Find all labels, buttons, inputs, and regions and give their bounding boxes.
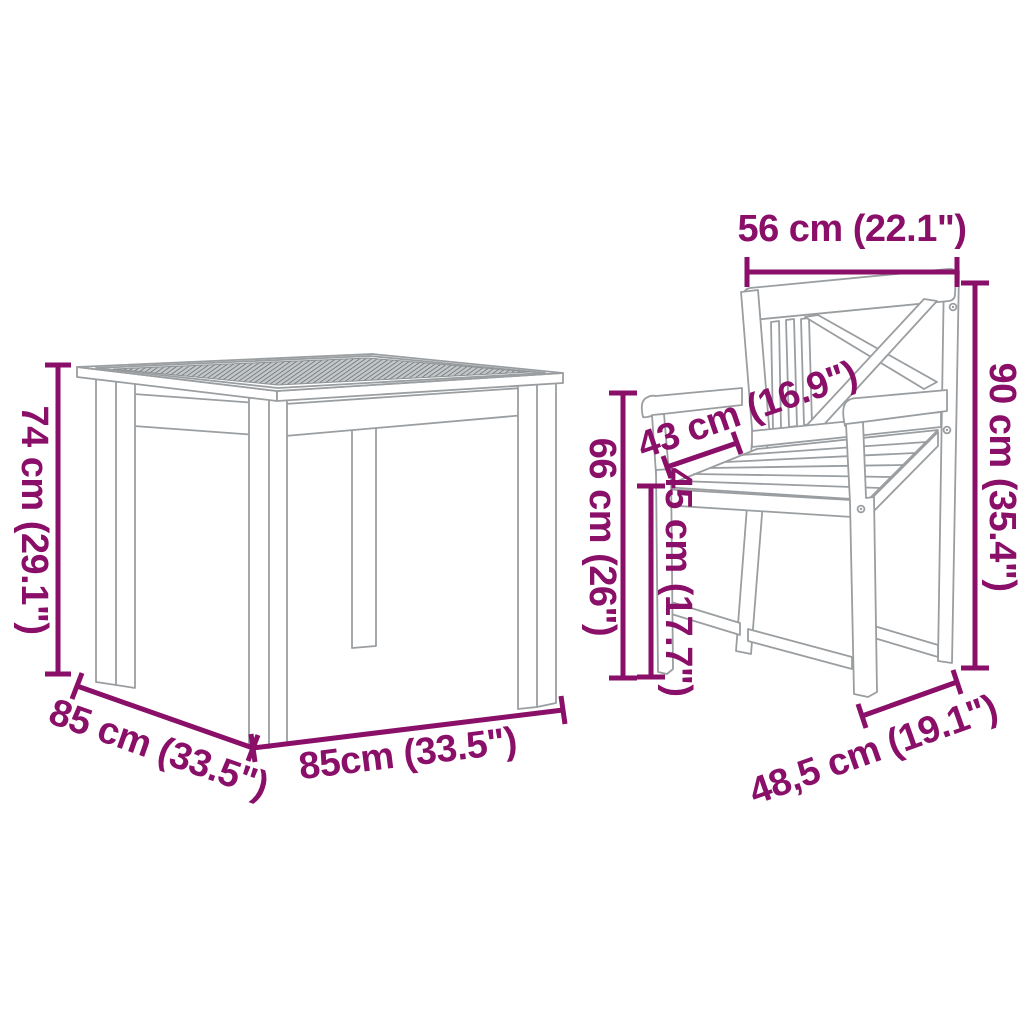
seat-height-dimension: 45 cm (17.7") (637, 467, 699, 696)
product-dimension-diagram: 74 cm (29.1") 85 cm (33.5") 85cm (33.5")… (0, 0, 1024, 1024)
chair-backrest-width-label: 56 cm (22.1") (737, 208, 966, 250)
stretcher-middle (748, 629, 852, 669)
armrest-height-label: 66 cm (26") (581, 438, 623, 636)
table-height-label: 74 cm (29.1") (13, 405, 55, 634)
table-height-dimension: 74 cm (29.1") (13, 365, 71, 674)
table-front-leg (249, 398, 287, 748)
table-back-leg (352, 419, 376, 648)
chair-back-right-stile (938, 271, 959, 663)
seat-height-label: 45 cm (17.7") (657, 467, 699, 696)
table-drawing (77, 354, 563, 748)
table-depth-dimension: 85 cm (33.5") (44, 673, 274, 807)
chair-front-width-label: 48,5 cm (19.1") (744, 687, 1003, 813)
armrest-height-dimension: 66 cm (26") (581, 393, 637, 678)
chair-height-dimension: 90 cm (35.4") (961, 283, 1023, 668)
table-depth-label: 85 cm (33.5") (44, 691, 274, 807)
diagram-canvas: 74 cm (29.1") 85 cm (33.5") 85cm (33.5")… (0, 0, 1024, 1024)
chair-height-label: 90 cm (35.4") (981, 362, 1023, 591)
